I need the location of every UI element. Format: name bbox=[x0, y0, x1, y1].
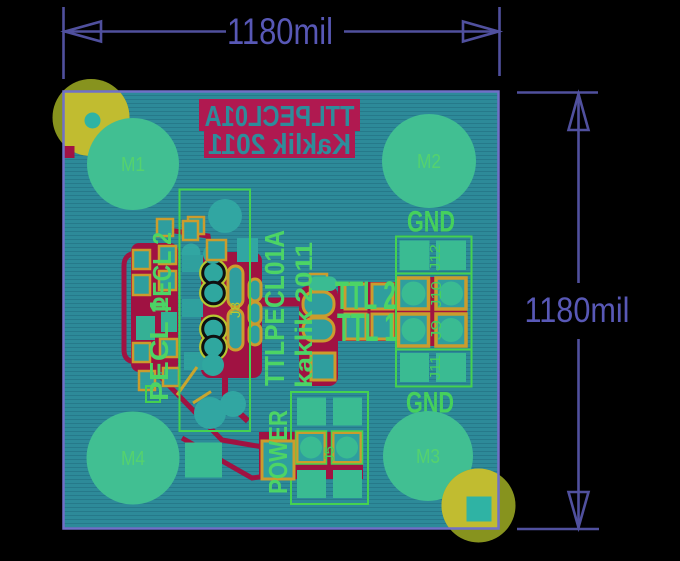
svg-text:J8: J8 bbox=[227, 302, 243, 318]
svg-text:TTLPECL01A: TTLPECL01A bbox=[259, 230, 290, 386]
svg-text:J9: J9 bbox=[428, 320, 445, 340]
svg-text:POWER: POWER bbox=[263, 410, 293, 494]
svg-text:M4: M4 bbox=[121, 448, 145, 470]
svg-text:GND: GND bbox=[407, 206, 455, 239]
svg-text:kaklik 2011: kaklik 2011 bbox=[291, 242, 318, 388]
svg-text:1180mil: 1180mil bbox=[227, 11, 333, 52]
svg-text:J5: J5 bbox=[321, 446, 337, 462]
svg-text:M3: M3 bbox=[416, 446, 440, 468]
svg-text:Kaklik 2011: Kaklik 2011 bbox=[208, 129, 351, 161]
svg-text:1180mil: 1180mil bbox=[525, 291, 630, 330]
svg-text:PECL 1: PECL 1 bbox=[144, 297, 174, 401]
svg-text:J11: J11 bbox=[427, 355, 444, 380]
svg-text:J12: J12 bbox=[427, 244, 444, 271]
svg-text:J10: J10 bbox=[428, 281, 445, 308]
svg-text:M2: M2 bbox=[417, 151, 441, 173]
svg-text:M1: M1 bbox=[121, 154, 145, 176]
svg-text:TTL 1: TTL 1 bbox=[337, 306, 397, 350]
